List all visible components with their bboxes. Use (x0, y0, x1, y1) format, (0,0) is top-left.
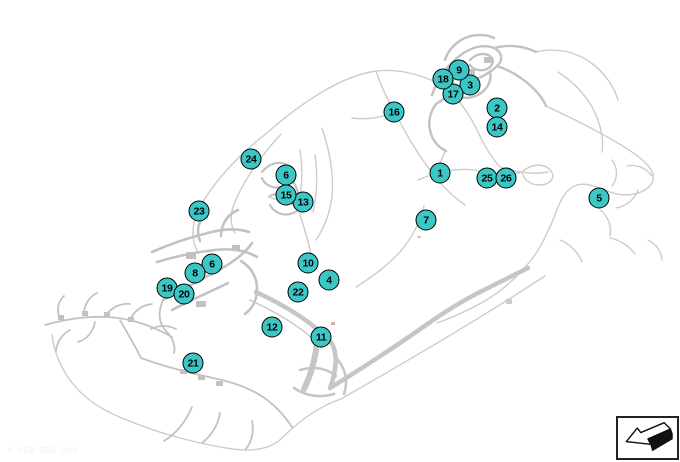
callout-6[interactable]: 6 (276, 165, 297, 186)
callout-7[interactable]: 7 (416, 210, 437, 231)
direction-thumbnail-button[interactable] (616, 416, 679, 460)
callout-22[interactable]: 22 (288, 282, 309, 303)
callout-4[interactable]: 4 (319, 270, 340, 291)
harness-drawing (0, 0, 680, 462)
body-outline-lines (52, 50, 662, 450)
callout-1[interactable]: 1 (430, 163, 451, 184)
callout-23[interactable]: 23 (189, 201, 210, 222)
callout-11[interactable]: 11 (311, 327, 332, 348)
callout-24[interactable]: 24 (241, 149, 262, 170)
callout-2[interactable]: 2 (487, 98, 508, 119)
direction-arrow-icon (621, 420, 675, 456)
callout-26[interactable]: 26 (496, 168, 517, 189)
watermark-id: 0 000 000 000 (8, 446, 79, 455)
callout-18[interactable]: 18 (433, 69, 454, 90)
callout-12[interactable]: 12 (262, 317, 283, 338)
callout-10[interactable]: 10 (298, 253, 319, 274)
callout-8[interactable]: 8 (185, 263, 206, 284)
wiring-harness-diagram: 1234566789101112131415161718192021222324… (0, 0, 680, 462)
callout-21[interactable]: 21 (183, 353, 204, 374)
callout-15[interactable]: 15 (276, 185, 297, 206)
connector-specks (331, 236, 421, 325)
callout-16[interactable]: 16 (384, 102, 405, 123)
callout-25[interactable]: 25 (477, 168, 498, 189)
callout-20[interactable]: 20 (174, 284, 195, 305)
callout-5[interactable]: 5 (589, 188, 610, 209)
callout-14[interactable]: 14 (487, 117, 508, 138)
front-end-harness-network (45, 293, 292, 449)
